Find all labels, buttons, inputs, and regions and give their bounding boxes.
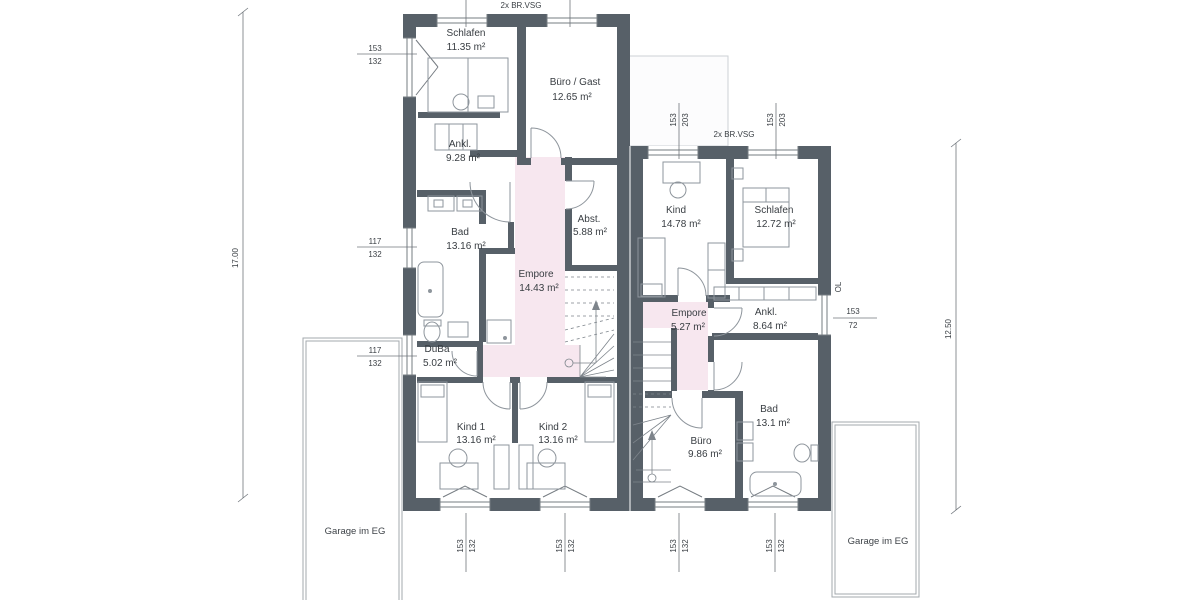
window-top-right-1 (648, 146, 698, 159)
room-name-ankleide-right: Ankl. (755, 307, 777, 318)
washbasin-duba (448, 322, 468, 337)
room-area-kind1: 13.16 m² (456, 435, 496, 446)
dim-window-right-h: 72 (849, 321, 858, 330)
dim-window-topright1-w: 153 (669, 113, 678, 127)
window-top-right-2 (748, 146, 798, 159)
dim-window-left-top-w: 153 (368, 44, 382, 53)
door-kind2 (520, 382, 547, 409)
shower-left (487, 320, 511, 343)
room-name-empore-right: Empore (671, 308, 706, 319)
bathtub-left (418, 262, 443, 317)
room-area-schlafen-right: 12.72 m² (756, 219, 796, 230)
window-left-bad (403, 228, 416, 268)
dim-window-topright2-w: 153 (766, 113, 775, 127)
door-schlafen-right (714, 308, 742, 336)
bathtub-right (750, 472, 801, 496)
room-name-ankleide-left: Ankl. (449, 139, 471, 150)
window-left-duba (403, 335, 416, 375)
door-kind1 (483, 382, 510, 409)
desk-kind1 (440, 449, 478, 489)
window-top-left-2 (547, 14, 597, 27)
floor-plan-drawing: Schlafen 11.35 m² Büro / Gast 12.65 m² A… (0, 0, 1200, 600)
washbasins-bad-left (428, 196, 482, 211)
window-right-ankl (818, 295, 831, 335)
room-name-kind-right: Kind (666, 205, 686, 216)
room-area-kind2: 13.16 m² (538, 435, 578, 446)
room-area-bad-left: 13.16 m² (446, 241, 486, 252)
bed-schlafen-left (428, 58, 508, 112)
bed-kind1 (418, 382, 447, 442)
room-area-duba: 5.02 m² (423, 358, 458, 369)
garage-right-outline (832, 422, 919, 597)
dim-window-left-mid-h: 132 (368, 250, 382, 259)
dim-total-right: 12.50 (944, 318, 953, 339)
room-name-bad-left: Bad (451, 227, 469, 238)
door-kind-right (678, 268, 706, 296)
dim-window-bottom1-w: 153 (456, 539, 465, 553)
room-name-kind2: Kind 2 (539, 422, 568, 433)
cabinet-kind-right (708, 243, 725, 298)
window-left-schlafen (403, 38, 438, 97)
dim-window-left-low-w: 117 (369, 346, 382, 355)
room-name-schlafen-right: Schlafen (755, 205, 794, 216)
room-area-buero-gast: 12.65 m² (552, 92, 592, 103)
dim-window-topright1-h: 203 (681, 113, 690, 127)
door-bad-right (714, 362, 742, 390)
room-area-abstellraum: 5.88 m² (573, 227, 608, 238)
dim-window-topright2-h: 203 (778, 113, 787, 127)
empore-floor-left (477, 157, 580, 377)
room-name-duba: DuBa (424, 344, 449, 355)
dim-window-bottom2-h: 132 (567, 539, 576, 553)
door-bad-left (470, 182, 510, 222)
door-buero-right (672, 398, 702, 428)
garage-label-right: Garage im EG (848, 536, 909, 547)
room-area-ankleide-right: 8.64 m² (753, 321, 788, 332)
room-area-ankleide-left: 9.28 m² (446, 153, 481, 164)
room-name-buero-gast: Büro / Gast (550, 77, 601, 88)
dim-window-bottom3-w: 153 (669, 539, 678, 553)
garage-label-left: Garage im EG (325, 526, 386, 537)
window-bottom-kind2 (540, 486, 590, 511)
dim-window-right-w: 153 (846, 307, 860, 316)
garage-left-outline (303, 338, 402, 600)
dim-window-bottom2-w: 153 (555, 539, 564, 553)
room-name-abstellraum: Abst. (578, 214, 601, 225)
room-name-bad-right: Bad (760, 404, 778, 415)
stair-start-marker-right (648, 474, 656, 482)
door-buero-gast (531, 128, 561, 158)
desk-kind-right (663, 162, 700, 198)
dim-window-left-top-h: 132 (368, 57, 382, 66)
bed-kind2 (585, 382, 614, 442)
glazing-note-left: 2x BR.VSG (501, 1, 542, 10)
window-bottom-kind1 (440, 486, 490, 511)
dim-window-left-low-h: 132 (368, 359, 382, 368)
dim-lines-bottom-windows (466, 513, 775, 572)
dim-window-bottom4-h: 132 (777, 539, 786, 553)
window-top-left-1 (437, 14, 487, 27)
toilet-bad-right (794, 444, 818, 462)
room-name-buero-right: Büro (690, 436, 712, 447)
window-bottom-buero (655, 486, 705, 511)
room-area-kind-right: 14.78 m² (661, 219, 701, 230)
dim-total-left: 17.00 (231, 247, 240, 268)
room-area-bad-right: 13.1 m² (756, 418, 791, 429)
toilet-duba (424, 320, 441, 342)
dim-window-bottom4-w: 153 (765, 539, 774, 553)
room-area-empore-left: 14.43 m² (519, 283, 559, 294)
dim-window-bottom1-h: 132 (468, 539, 477, 553)
skylight-label: OL (834, 281, 843, 292)
dim-window-bottom3-h: 132 (681, 539, 690, 553)
window-bottom-bad (748, 486, 798, 511)
dim-window-left-mid-w: 117 (369, 237, 382, 246)
room-name-schlafen-left: Schlafen (447, 28, 486, 39)
door-abstellraum (566, 181, 594, 209)
glazing-note-right: 2x BR.VSG (714, 130, 755, 139)
floor-plan-page: Schlafen 11.35 m² Büro / Gast 12.65 m² A… (0, 0, 1200, 600)
room-name-kind1: Kind 1 (457, 422, 486, 433)
room-area-buero-right: 9.86 m² (688, 449, 723, 460)
room-area-schlafen-left: 11.35 m² (447, 42, 486, 53)
room-name-empore-left: Empore (518, 269, 553, 280)
room-area-empore-right: 5.27 m² (671, 322, 706, 333)
